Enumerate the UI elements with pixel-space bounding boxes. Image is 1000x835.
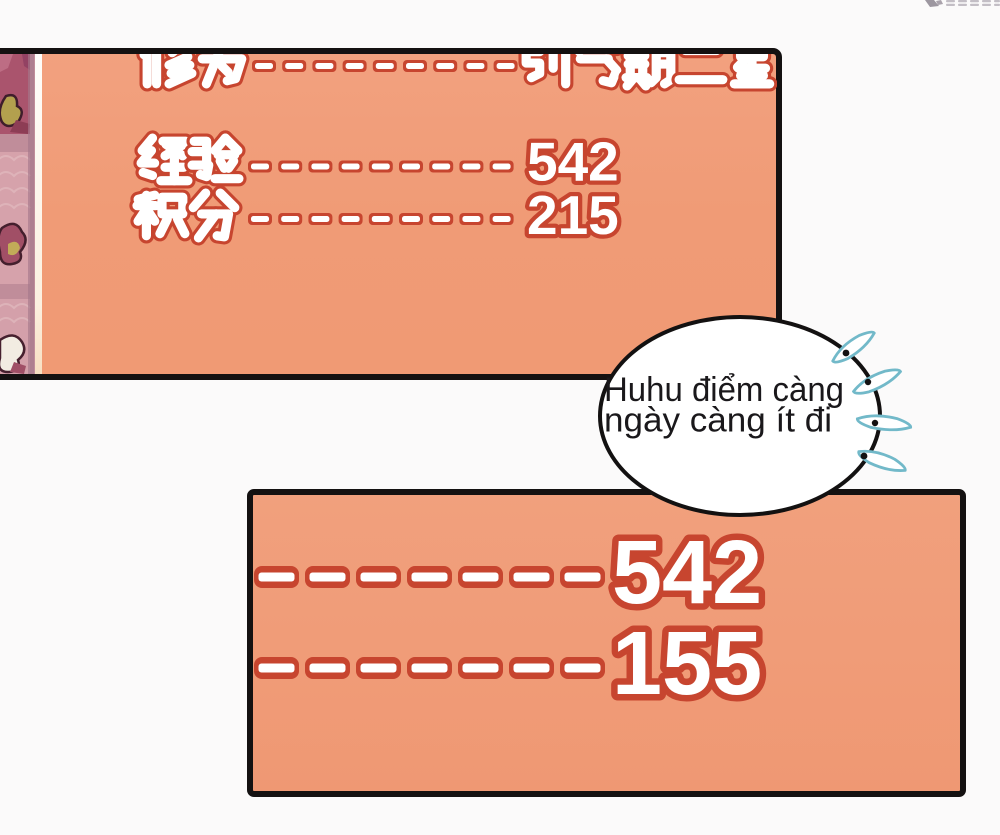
svg-text:215: 215 <box>527 184 619 246</box>
svg-text:155: 155 <box>612 614 762 714</box>
svg-text:542: 542 <box>612 523 762 623</box>
svg-text:ngày càng ít đi: ngày càng ít đi <box>604 402 832 440</box>
